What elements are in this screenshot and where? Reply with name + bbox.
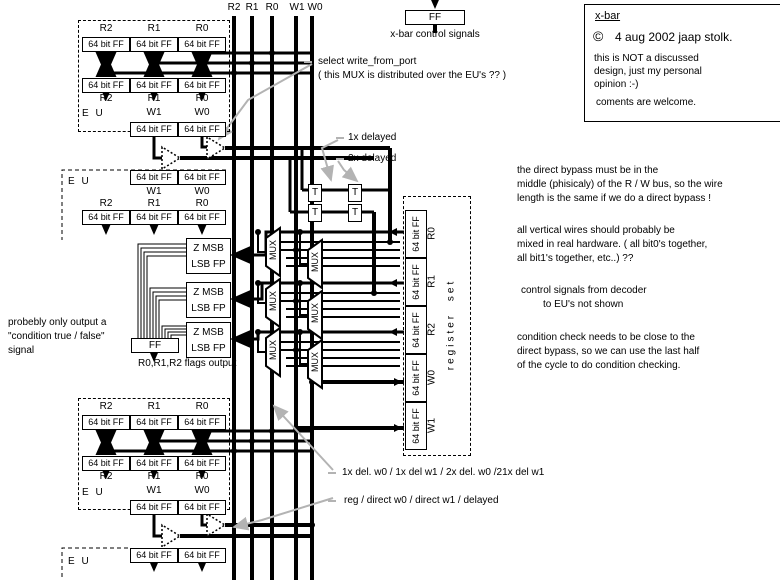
- port-label: R0: [178, 198, 226, 209]
- port-label: R2: [82, 471, 130, 482]
- register-ff-cell: 64 bit FF: [405, 354, 427, 402]
- ff-cell: 64 bit FF: [130, 415, 178, 430]
- note-bypass-line2: middle (phisicaly) of the R / W bus, so …: [517, 179, 723, 190]
- port-label: W1: [130, 107, 178, 118]
- left-annotation-line3: signal: [8, 345, 34, 356]
- mux-label: MUX: [268, 335, 278, 365]
- title-note-line1: this is NOT a discussed: [594, 53, 699, 64]
- port-label: R2: [82, 23, 130, 34]
- port-label: R1: [130, 471, 178, 482]
- register-row-label: R2: [427, 319, 440, 341]
- ff-cell: 64 bit FF: [130, 78, 178, 93]
- ff-cell: 64 bit FF: [82, 210, 130, 225]
- port-label: R1: [130, 401, 178, 412]
- ff-cell: 64 bit FF: [178, 415, 226, 430]
- port-label: R0: [178, 471, 226, 482]
- register-row-label: R1: [427, 271, 440, 293]
- register-ff-cell: 64 bit FF: [405, 402, 427, 450]
- z-msb-label: Z MSB: [187, 241, 230, 257]
- ff-cell: 64 bit FF: [130, 210, 178, 225]
- z-msb-label: Z MSB: [187, 325, 230, 341]
- ff-cell: 64 bit FF: [82, 456, 130, 471]
- port-label: R0: [178, 23, 226, 34]
- ff-cell: 64 bit FF: [178, 456, 226, 471]
- flags-ff-box: FF: [131, 338, 179, 353]
- port-label: W0: [178, 485, 226, 496]
- eu3-label: E U: [82, 487, 105, 498]
- distributed-mux-triangle: [207, 514, 225, 536]
- register-ff-cell: 64 bit FF: [405, 258, 427, 306]
- ff-cell: 64 bit FF: [178, 548, 226, 563]
- ff-cell: 64 bit FF: [178, 170, 226, 185]
- note-condition-line2: direct bypass, so we can use the last ha…: [517, 346, 699, 357]
- ff-cell: 64 bit FF: [178, 78, 226, 93]
- condition-check-box: Z MSB LSB FP: [186, 282, 231, 318]
- ff-cell: 64 bit FF: [130, 170, 178, 185]
- register-ff-cell: 64 bit FF: [405, 210, 427, 258]
- left-annotation-line1: probebly only output a: [8, 317, 106, 328]
- register-set-caption: register set: [446, 270, 459, 380]
- select-write-annotation-line1: select write_from_port: [318, 56, 416, 67]
- flags-output-caption: R0,R1,R2 flags output: [138, 358, 236, 369]
- port-label: R1: [130, 198, 178, 209]
- port-label: R0: [178, 93, 226, 104]
- eu2-wiring: [106, 226, 202, 233]
- title-welcome: coments are welcome.: [596, 97, 696, 108]
- left-annotation-line2: "condition true / false": [8, 331, 105, 342]
- port-label: W0: [178, 107, 226, 118]
- mux-label: MUX: [310, 298, 320, 328]
- ff-cell: 64 bit FF: [130, 456, 178, 471]
- eu1-label: E U: [82, 108, 105, 119]
- port-label: W1: [130, 186, 178, 197]
- control-ff-box: FF: [405, 10, 465, 25]
- note-wires-line3: all bit1's together, etc..) ??: [517, 253, 633, 264]
- mux-label: MUX: [310, 247, 320, 277]
- lsb-fp-label: LSB FP: [187, 301, 230, 317]
- delay-t-box: T: [348, 184, 362, 202]
- ff-cell: 64 bit FF: [178, 122, 226, 137]
- copyright-icon: ©: [593, 28, 603, 44]
- note-bypass-line3: length is the same if we do a direct byp…: [517, 193, 711, 204]
- mux-label: MUX: [268, 235, 278, 265]
- distributed-mux-triangle: [207, 137, 225, 159]
- port-label: R1: [130, 23, 178, 34]
- bus-label-r0: R0: [260, 2, 284, 13]
- xbar-schematic: R2 R1 R0 W1 W0 FF x-bar control signals …: [0, 0, 780, 580]
- note-control-line2: to EU's not shown: [543, 299, 623, 310]
- port-label: W1: [130, 485, 178, 496]
- port-label: R2: [82, 93, 130, 104]
- control-caption: x-bar control signals: [375, 29, 495, 40]
- port-label: R2: [82, 198, 130, 209]
- note-condition-line1: condition check needs to be close to the: [517, 332, 695, 343]
- ff-cell: 64 bit FF: [130, 122, 178, 137]
- delayed-1x-annotation: 1x delayed: [348, 132, 396, 143]
- select-write-annotation-line2: ( this MUX is distributed over the EU's …: [318, 70, 506, 81]
- lsb-fp-label: LSB FP: [187, 341, 230, 357]
- ff-cell: 64 bit FF: [130, 37, 178, 52]
- port-label: W0: [178, 186, 226, 197]
- note-bypass-line1: the direct bypass must be in the: [517, 165, 658, 176]
- ff-cell: 64 bit FF: [82, 415, 130, 430]
- title-note-line2: design, just my personal: [594, 66, 702, 77]
- delay-t-box: T: [348, 204, 362, 222]
- register-row-label: R0: [427, 223, 440, 245]
- note-condition-line3: of the cycle to do condition checking.: [517, 360, 680, 371]
- delay-t-box: T: [308, 204, 322, 222]
- note-wires-line2: mixed in real hardware. ( all bit0's tog…: [517, 239, 707, 250]
- title: x-bar: [595, 10, 620, 22]
- note-control-line1: control signals from decoder: [521, 285, 647, 296]
- title-note-line3: opinion :-): [594, 79, 638, 90]
- bus-label-w0: W0: [303, 2, 327, 13]
- ff-cell: 64 bit FF: [82, 37, 130, 52]
- ff-cell: 64 bit FF: [178, 210, 226, 225]
- distributed-mux-triangle: [162, 147, 180, 169]
- ff-cell: 64 bit FF: [130, 500, 178, 515]
- ff-cell: 64 bit FF: [130, 548, 178, 563]
- condition-check-box: Z MSB LSB FP: [186, 322, 231, 358]
- distributed-mux-triangle: [162, 525, 180, 547]
- register-ff-cell: 64 bit FF: [405, 306, 427, 354]
- delay-t-box: T: [308, 184, 322, 202]
- register-row-label: W1: [427, 415, 440, 437]
- port-label: R1: [130, 93, 178, 104]
- z-msb-label: Z MSB: [187, 285, 230, 301]
- title-box: x-bar © 4 aug 2002 jaap stolk. this is N…: [584, 4, 780, 122]
- bottom-annotation-line1: 1x del. w0 / 1x del w1 / 2x del. w0 /21x…: [342, 467, 544, 478]
- mux-label: MUX: [268, 286, 278, 316]
- ff-cell: 64 bit FF: [82, 78, 130, 93]
- mux-label: MUX: [310, 347, 320, 377]
- lsb-fp-label: LSB FP: [187, 257, 230, 273]
- eu2-label: E U: [68, 176, 91, 187]
- note-wires-line1: all vertical wires should probably be: [517, 225, 675, 236]
- bottom-annotation-line2: reg / direct w0 / direct w1 / delayed: [344, 495, 499, 506]
- ff-cell: 64 bit FF: [178, 500, 226, 515]
- delayed-2x-annotation: 2x delayed: [348, 153, 396, 164]
- port-label: R0: [178, 401, 226, 412]
- gray-annotation-arrows: [219, 62, 357, 527]
- condition-check-box: Z MSB LSB FP: [186, 238, 231, 274]
- ff-cell: 64 bit FF: [178, 37, 226, 52]
- copyright-text: 4 aug 2002 jaap stolk.: [615, 30, 732, 44]
- port-label: R2: [82, 401, 130, 412]
- eu4-label: E U: [68, 556, 91, 567]
- register-row-label: W0: [427, 367, 440, 389]
